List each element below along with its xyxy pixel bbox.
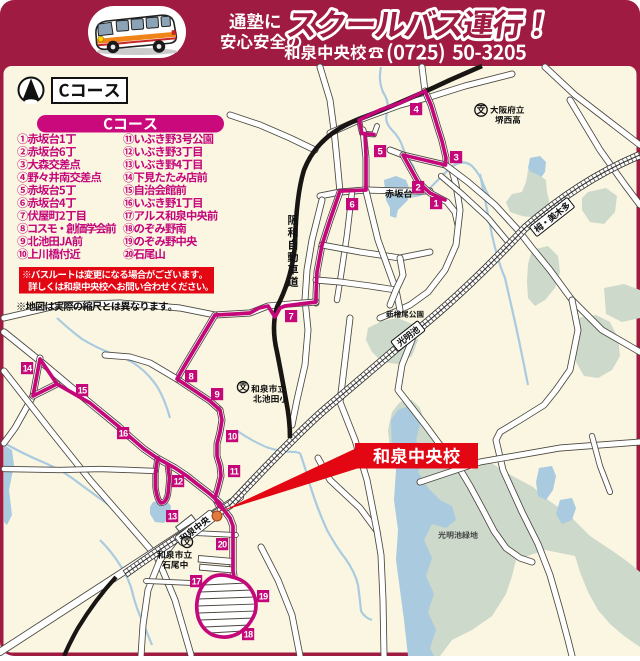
svg-text:4: 4 [413, 105, 419, 116]
svg-text:7: 7 [288, 312, 293, 323]
svg-text:3: 3 [453, 153, 458, 164]
svg-text:19: 19 [259, 592, 268, 602]
svg-text:10: 10 [228, 432, 237, 442]
svg-text:18: 18 [244, 630, 253, 640]
svg-text:20: 20 [218, 540, 227, 550]
svg-text:15: 15 [78, 386, 87, 396]
svg-text:17: 17 [192, 577, 201, 587]
svg-text:2: 2 [415, 183, 420, 194]
svg-text:13: 13 [168, 512, 177, 522]
svg-text:8: 8 [188, 372, 193, 383]
svg-text:12: 12 [174, 477, 183, 487]
svg-text:6: 6 [349, 200, 354, 211]
svg-text:5: 5 [377, 147, 383, 158]
svg-text:14: 14 [23, 364, 32, 374]
svg-text:1: 1 [433, 199, 439, 210]
svg-text:9: 9 [214, 390, 219, 401]
svg-text:16: 16 [119, 429, 128, 439]
svg-text:11: 11 [230, 467, 239, 477]
